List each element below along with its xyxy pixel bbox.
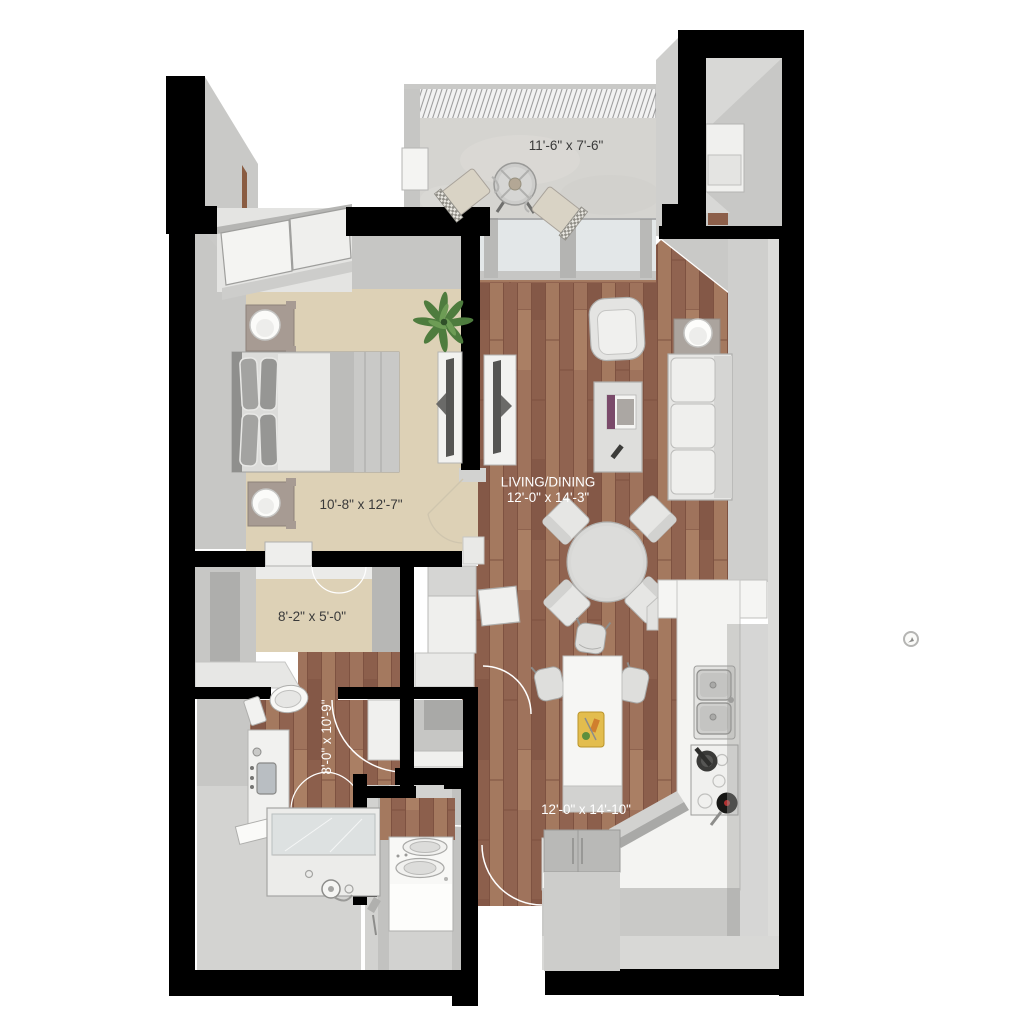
svg-text:12'-0" x 14'-3": 12'-0" x 14'-3": [507, 490, 590, 505]
svg-text:10'-8" x 12'-7": 10'-8" x 12'-7": [319, 497, 402, 512]
svg-text:LIVING/DINING: LIVING/DINING: [501, 475, 596, 490]
svg-text:8'-0" x 10'-9": 8'-0" x 10'-9": [319, 699, 334, 774]
svg-text:12'-0" x 14'-10": 12'-0" x 14'-10": [541, 802, 631, 817]
svg-text:8'-2" x 5'-0": 8'-2" x 5'-0": [278, 609, 346, 624]
svg-text:11'-6" x 7'-6": 11'-6" x 7'-6": [529, 138, 604, 153]
